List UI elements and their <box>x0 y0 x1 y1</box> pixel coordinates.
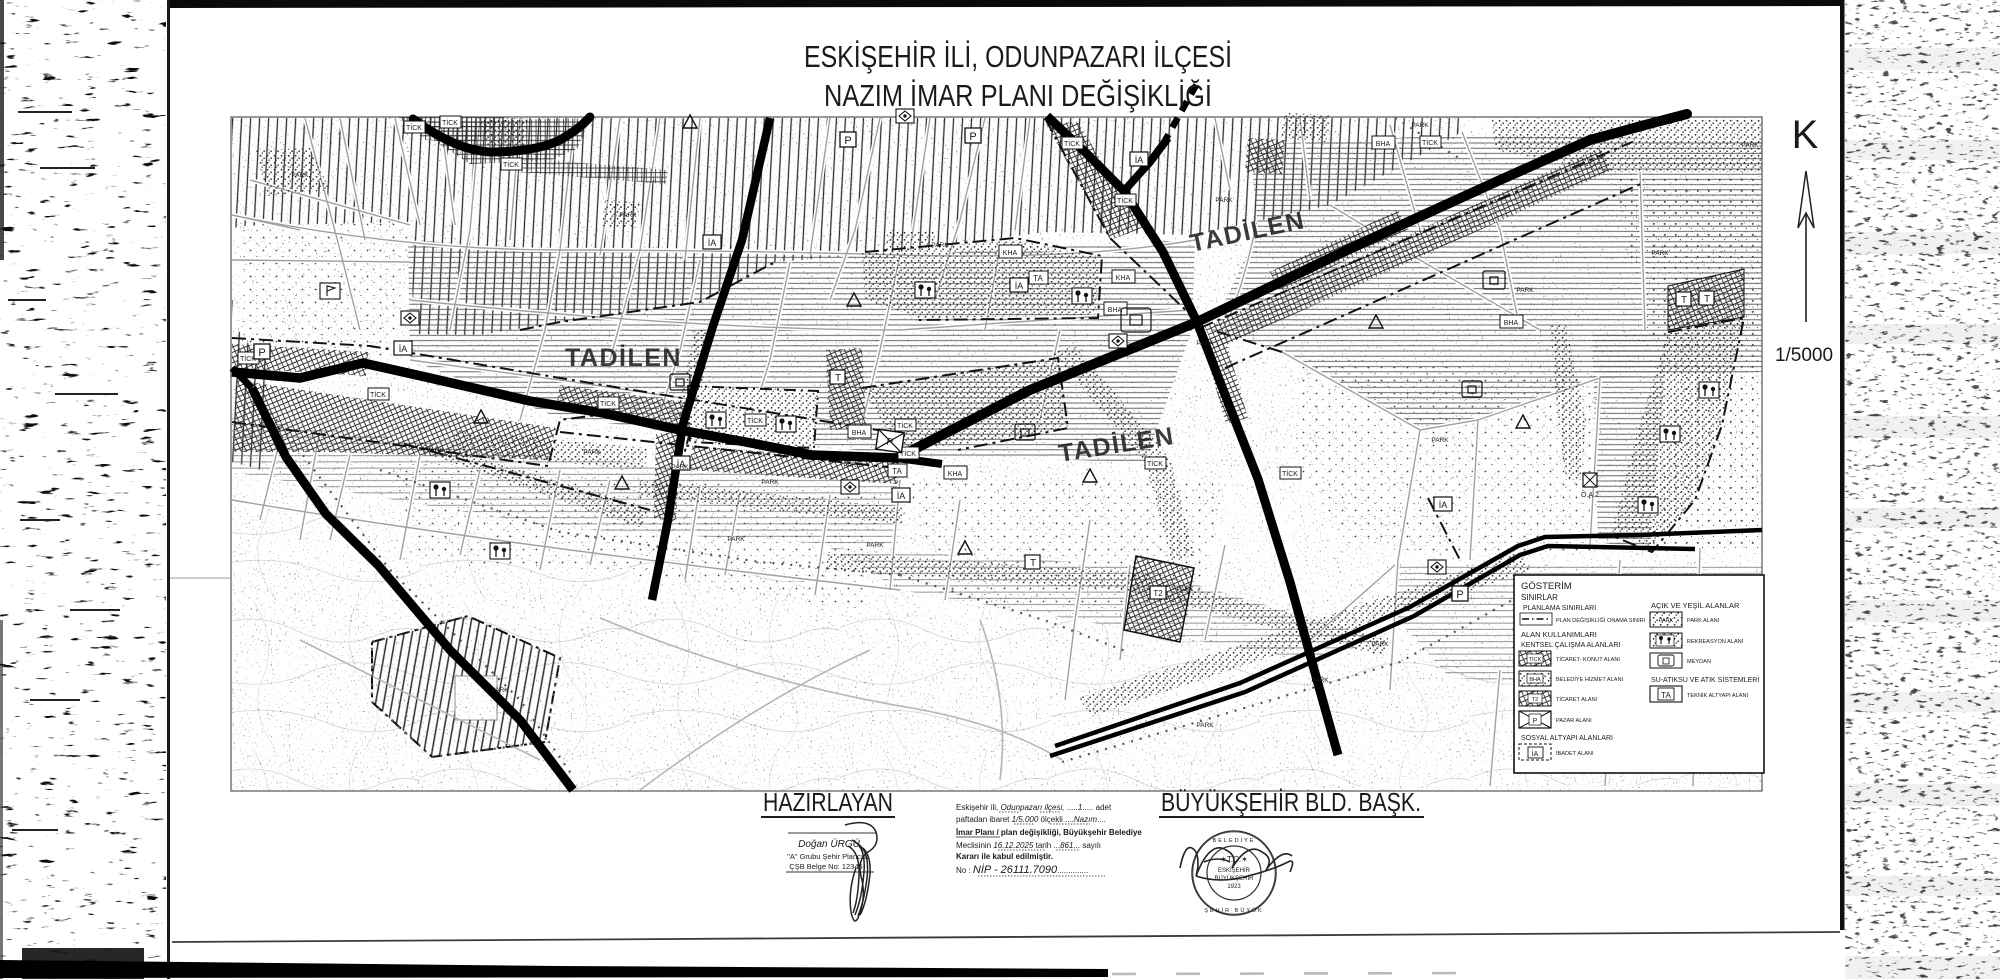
svg-text:T2: T2 <box>1153 589 1163 598</box>
svg-text:PARK: PARK <box>1196 340 1214 347</box>
svg-text:BHA: BHA <box>1529 677 1541 683</box>
svg-text:ŞEHİR BÜYÜK: ŞEHİR BÜYÜK <box>1204 907 1263 914</box>
svg-text:İA: İA <box>1439 500 1448 510</box>
svg-text:SU-ATIKSU VE ATIK SİSTEMLERİ: SU-ATIKSU VE ATIK SİSTEMLERİ <box>1651 675 1759 684</box>
svg-text:HAZIRLAYAN: HAZIRLAYAN <box>763 787 893 817</box>
svg-text:TİCARET- KONUT ALANI: TİCARET- KONUT ALANI <box>1556 656 1620 663</box>
svg-text:K: K <box>1792 113 1819 157</box>
svg-text:GÖSTERİM: GÖSTERİM <box>1521 581 1572 592</box>
svg-text:PARK: PARK <box>761 479 779 486</box>
svg-text:PARK: PARK <box>1659 618 1674 624</box>
svg-text:KHA: KHA <box>1116 275 1131 282</box>
svg-text:PARK: PARK <box>1311 677 1329 684</box>
svg-text:TA: TA <box>1033 274 1043 283</box>
svg-text:T: T <box>1704 294 1710 305</box>
svg-text:BELEDİYE: BELEDİYE <box>1213 837 1256 844</box>
svg-text:PARK: PARK <box>931 242 949 249</box>
svg-text:T: T <box>835 373 841 384</box>
svg-text:TİCK: TİCK <box>442 118 458 127</box>
svg-text:1/5000: 1/5000 <box>1775 345 1833 366</box>
svg-text:PARK: PARK <box>727 536 745 543</box>
svg-text:PARK: PARK <box>1431 437 1449 444</box>
svg-text:İmar Planı / plan değişikliği,: İmar Planı / plan değişikliği, Büyükşehi… <box>956 828 1142 837</box>
svg-text:BÜYÜKŞEHİR BLD. BAŞK.: BÜYÜKŞEHİR BLD. BAŞK. <box>1161 787 1421 817</box>
svg-text:Eskişehir ili, Odunpazarı ilçe: Eskişehir ili, Odunpazarı ilçesi, .....1… <box>956 803 1112 812</box>
svg-text:Ö.A.2: Ö.A.2 <box>1581 491 1599 499</box>
svg-text:TA: TA <box>1661 691 1671 700</box>
svg-text:PARK: PARK <box>671 464 689 471</box>
svg-text:KHA: KHA <box>948 471 963 478</box>
svg-text:KHA: KHA <box>1003 250 1018 257</box>
svg-text:SINIRLAR: SINIRLAR <box>1521 593 1558 602</box>
svg-text:AÇIK VE YEŞİL ALANLAR: AÇIK VE YEŞİL ALANLAR <box>1651 601 1740 610</box>
svg-text:KENTSEL ÇALIŞMA ALANLARI: KENTSEL ÇALIŞMA ALANLARI <box>1521 642 1620 649</box>
svg-text:NAZIM İMAR PLANI DEĞİŞİKLİĞİ: NAZIM İMAR PLANI DEĞİŞİKLİĞİ <box>824 78 1212 113</box>
svg-text:MEYDAN: MEYDAN <box>1687 659 1711 665</box>
svg-text:BHA: BHA <box>1376 141 1391 148</box>
svg-text:PARK: PARK <box>1176 586 1194 593</box>
svg-text:TİCK: TİCK <box>1117 196 1133 205</box>
svg-text:Kararı ile kabul edilmiştir.: Kararı ile kabul edilmiştir. <box>956 852 1053 861</box>
svg-text:PARK: PARK <box>1126 342 1144 349</box>
svg-text:PARK: PARK <box>1411 122 1429 129</box>
svg-text:TEKNİK ALTYAPI ALANI: TEKNİK ALTYAPI ALANI <box>1687 692 1748 699</box>
svg-text:TİCK: TİCK <box>747 416 763 425</box>
svg-text:BELEDİYE HİZMET ALANI: BELEDİYE HİZMET ALANI <box>1556 676 1623 683</box>
svg-text:PARK: PARK <box>843 462 861 469</box>
svg-text:ÇŞB Belge No: 12345: ÇŞB Belge No: 12345 <box>789 862 862 871</box>
svg-text:PARK: PARK <box>426 447 444 454</box>
svg-text:PLAN DEĞİŞİKLİĞİ ONAMA SINIRI: PLAN DEĞİŞİKLİĞİ ONAMA SINIRI <box>1556 617 1646 624</box>
svg-text:REKREASYON ALANI: REKREASYON ALANI <box>1687 639 1744 645</box>
svg-text:P: P <box>1533 718 1538 725</box>
svg-text:T: T <box>1030 558 1036 569</box>
svg-text:PARK: PARK <box>1516 287 1534 294</box>
svg-text:PAZAR ALANI: PAZAR ALANI <box>1556 718 1592 724</box>
svg-text:BHA: BHA <box>852 430 867 437</box>
svg-text:BHA: BHA <box>1108 307 1123 314</box>
svg-text:İA: İA <box>1015 281 1024 291</box>
svg-text:İA: İA <box>1532 749 1539 758</box>
svg-text:SOSYAL ALTYAPI ALANLARI: SOSYAL ALTYAPI ALANLARI <box>1521 735 1613 742</box>
svg-text:TİCK: TİCK <box>600 399 616 408</box>
svg-text:TİCK: TİCK <box>1064 139 1080 148</box>
svg-text:P: P <box>844 135 851 147</box>
svg-text:ESKİŞEHİR: ESKİŞEHİR <box>1218 867 1251 874</box>
svg-text:BHA: BHA <box>1504 320 1519 327</box>
svg-text:P: P <box>969 131 976 143</box>
svg-text:PARK: PARK <box>1215 197 1233 204</box>
svg-text:PARK: PARK <box>1741 142 1759 149</box>
svg-text:TİCK: TİCK <box>406 123 422 132</box>
svg-text:PARK: PARK <box>1371 641 1389 648</box>
svg-text:İBADET ALANI: İBADET ALANI <box>1556 750 1594 757</box>
svg-text:T: T <box>1681 295 1687 306</box>
svg-text:ESKİŞEHİR İLİ, ODUNPAZARI İLÇE: ESKİŞEHİR İLİ, ODUNPAZARI İLÇESİ <box>804 39 1232 74</box>
svg-text:PARK: PARK <box>491 687 509 694</box>
svg-text:Meclisinin 16.12.2025 tarih ..: Meclisinin 16.12.2025 tarih ...861... sa… <box>956 841 1101 850</box>
svg-text:1923: 1923 <box>1227 884 1241 890</box>
svg-text:İA: İA <box>708 238 717 248</box>
svg-text:TİCK: TİCK <box>503 160 519 169</box>
svg-text:T2: T2 <box>1532 697 1538 703</box>
svg-text:PARK ALANI: PARK ALANI <box>1687 618 1720 624</box>
svg-text:PARK: PARK <box>1651 250 1669 257</box>
svg-text:İA: İA <box>399 344 408 354</box>
svg-text:TİCK: TİCK <box>897 421 913 430</box>
svg-text:TİCK: TİCK <box>1282 469 1298 478</box>
svg-text:TADİLEN: TADİLEN <box>565 344 682 372</box>
svg-text:PARK: PARK <box>1651 117 1669 124</box>
svg-text:TA: TA <box>892 467 902 476</box>
svg-text:TİCK: TİCK <box>1147 459 1163 468</box>
svg-text:paftadan ibaret 1/5.000 ölçekl: paftadan ibaret 1/5.000 ölçekli ....Nazı… <box>956 815 1106 824</box>
svg-text:P: P <box>1456 589 1463 601</box>
svg-text:No : NİP - 26111.7090........: No : NİP - 26111.7090.............. <box>956 864 1088 876</box>
svg-text:TİCARET ALANI: TİCARET ALANI <box>1556 696 1598 703</box>
svg-text:İA: İA <box>1135 155 1144 165</box>
svg-text:PARK: PARK <box>291 172 309 179</box>
svg-text:PARK: PARK <box>1196 722 1214 729</box>
svg-text:TİCK: TİCK <box>1529 656 1542 663</box>
svg-text:PARK: PARK <box>866 542 884 549</box>
svg-text:P: P <box>258 347 265 359</box>
svg-text:PARK: PARK <box>583 449 601 456</box>
svg-text:İA: İA <box>897 491 906 501</box>
svg-text:PARK: PARK <box>619 212 637 219</box>
svg-text:ALAN KULLANIMLARI: ALAN KULLANIMLARI <box>1521 630 1597 639</box>
svg-text:PLANLAMA SINIRLARI: PLANLAMA SINIRLARI <box>1523 605 1596 612</box>
svg-text:TİCK: TİCK <box>370 390 386 399</box>
svg-text:TİCK: TİCK <box>1422 138 1438 147</box>
